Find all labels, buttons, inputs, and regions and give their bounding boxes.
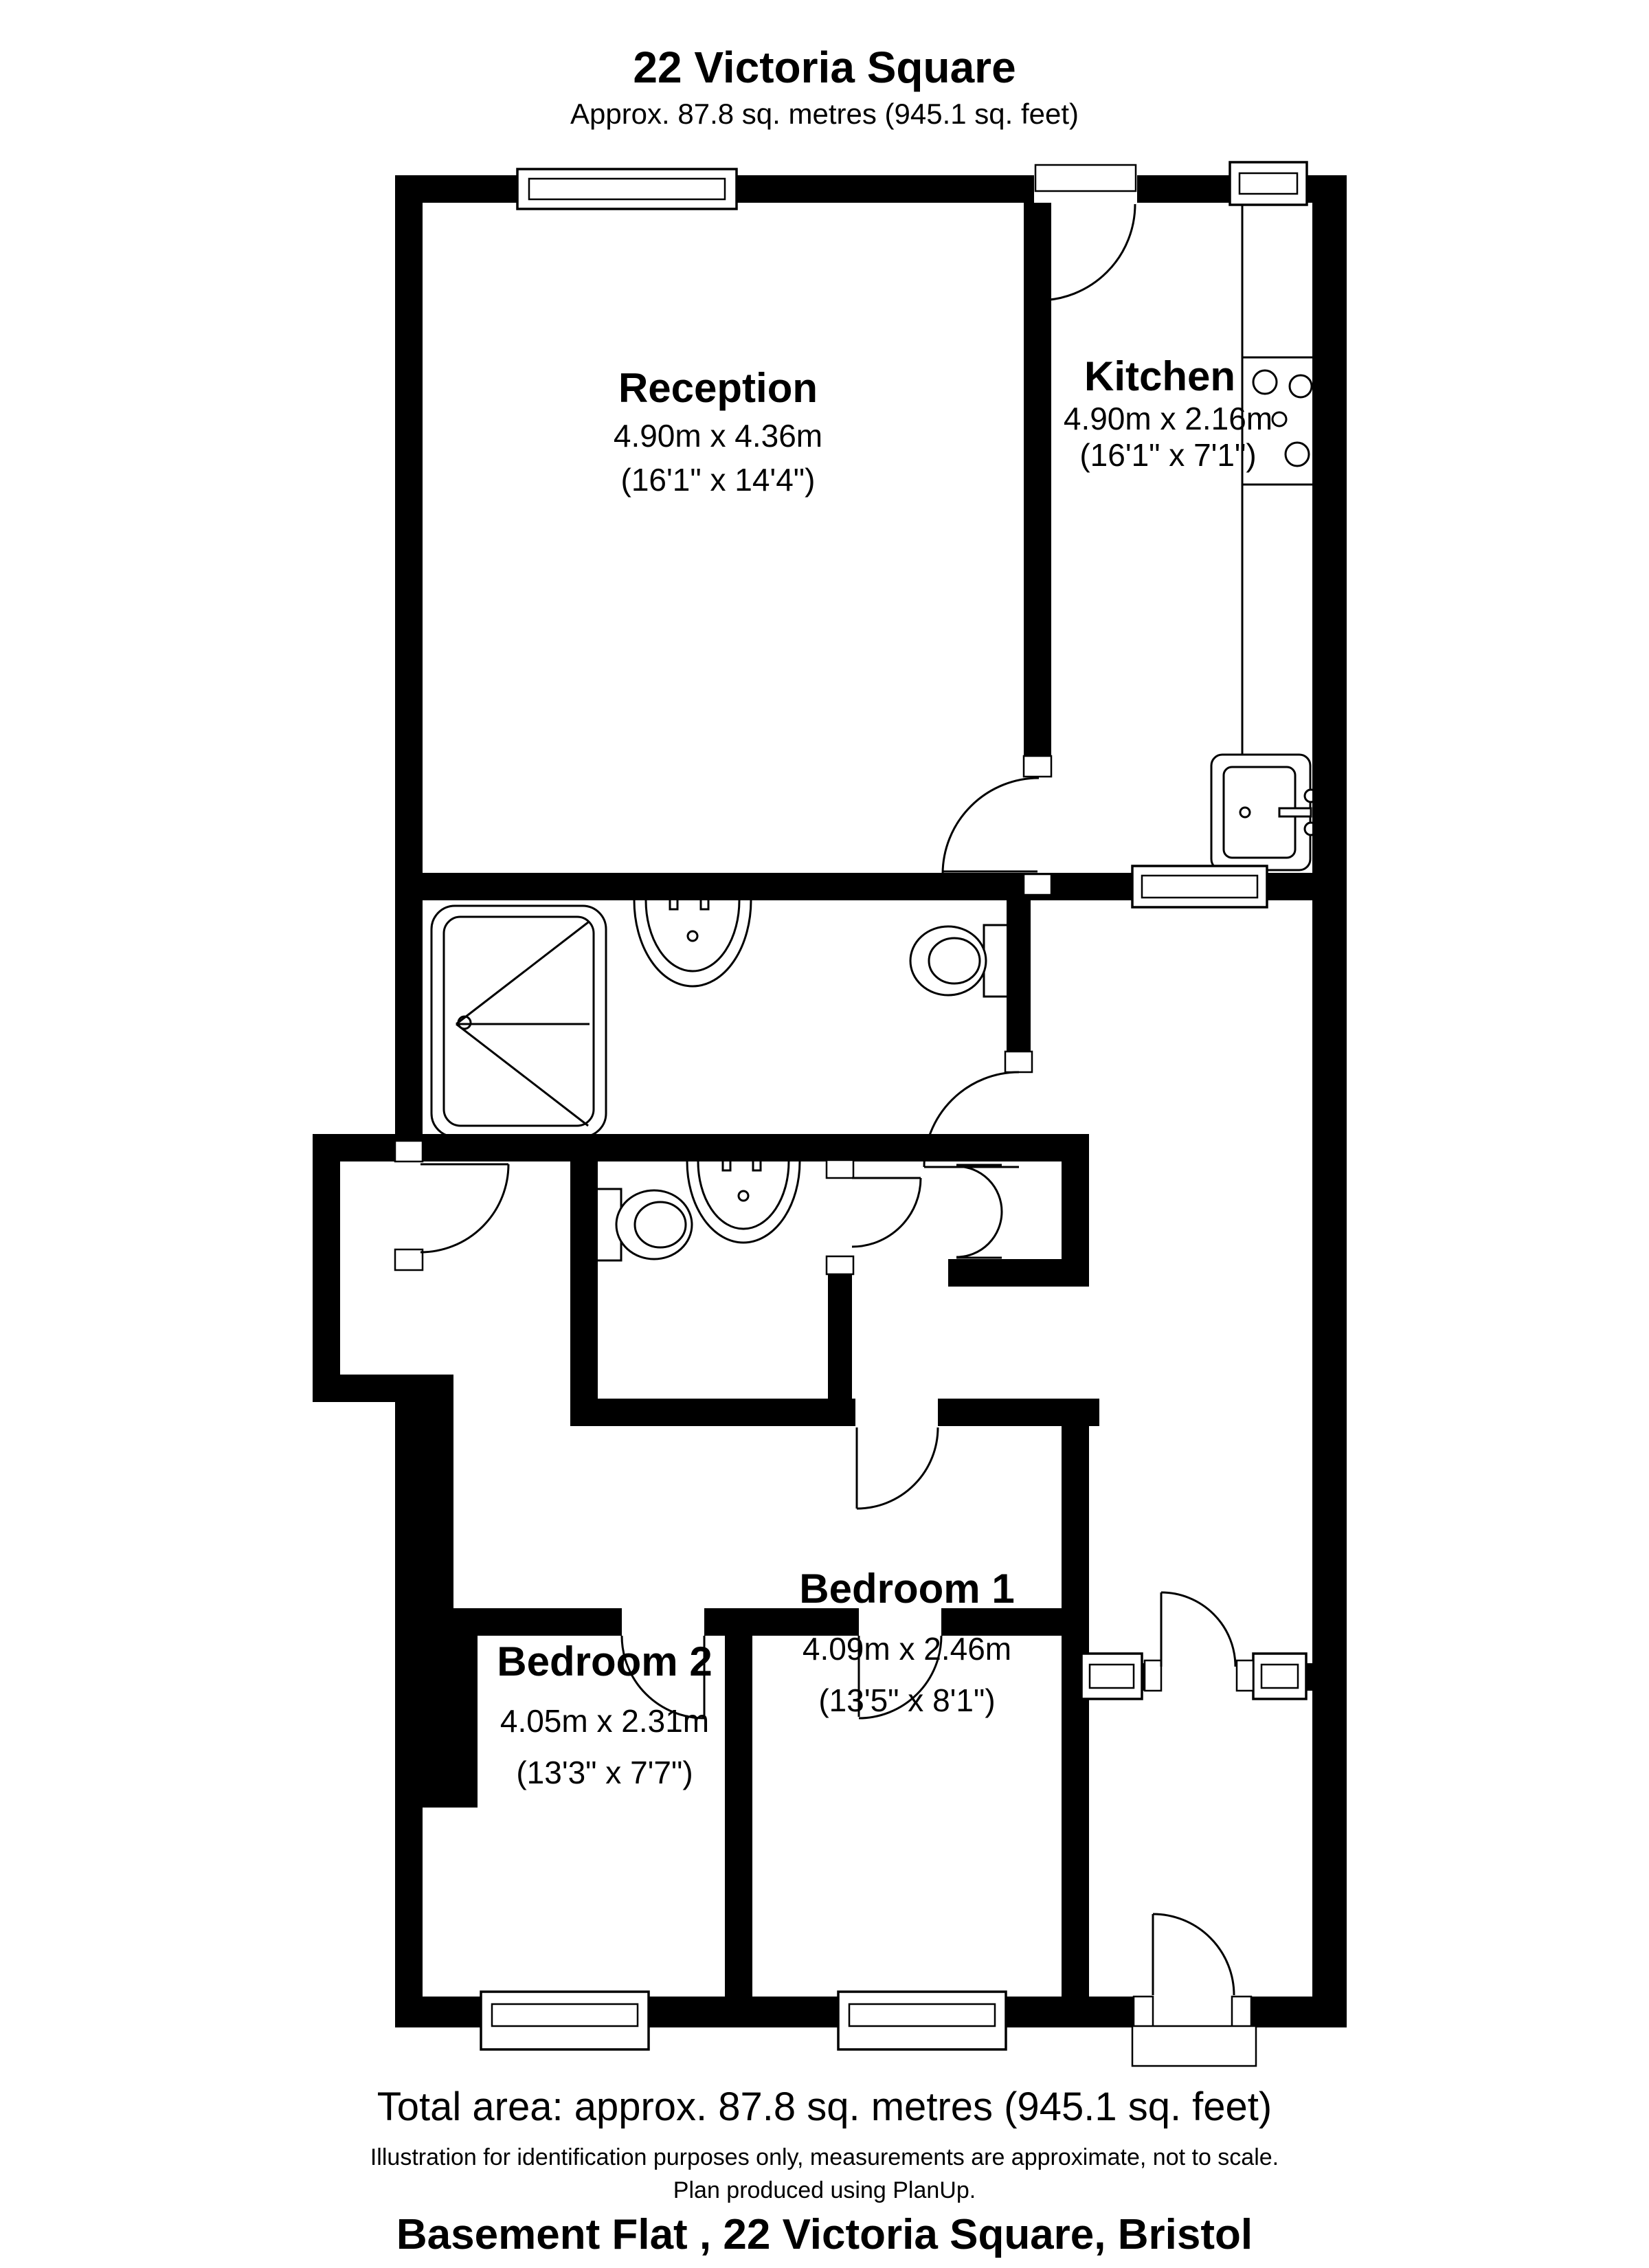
bedroom1-name: Bedroom 1 [799, 1566, 1014, 1612]
kitchen-bottom-window [1132, 866, 1267, 907]
bathtub-icon [431, 906, 606, 1137]
front-door [1132, 1914, 1256, 2066]
wc-toilet-icon [595, 1189, 692, 1260]
kitchen-sink-icon [1211, 755, 1317, 870]
reception-label: Reception 4.90m x 4.36m (16'1" x 14'4") [614, 365, 822, 498]
floorplan-page: 22 Victoria Square Approx. 87.8 sq. metr… [0, 0, 1649, 2268]
bedroom2-name: Bedroom 2 [497, 1638, 712, 1685]
corridor-hall-door [1145, 1592, 1253, 1691]
disclaimer-line1: Illustration for identification purposes… [370, 2144, 1279, 2170]
floor-plan: 22 Victoria Square Approx. 87.8 sq. metr… [0, 0, 1649, 2268]
inner-hall-door [857, 1427, 938, 1509]
disclaimer-line2: Plan produced using PlanUp. [673, 2177, 976, 2203]
hall-window-right [1253, 1654, 1306, 1699]
bathroom-toilet-icon [910, 925, 1010, 997]
bedroom2-dims-metric: 4.05m x 2.31m [500, 1703, 709, 1739]
bedroom2-window [481, 1992, 649, 2049]
reception-dims-metric: 4.90m x 4.36m [614, 418, 822, 454]
page-title: 22 Victoria Square [633, 43, 1016, 92]
kitchen-top-window [1230, 162, 1307, 205]
kitchen-label: Kitchen 4.90m x 2.16m (16'1" x 7'1") [1064, 353, 1272, 473]
reception-window [517, 169, 737, 209]
total-area-text: Total area: approx. 87.8 sq. metres (945… [377, 2084, 1272, 2129]
reception-name: Reception [618, 365, 818, 411]
closet-double-doors [956, 1165, 1002, 1258]
page-subtitle: Approx. 87.8 sq. metres (945.1 sq. feet) [570, 98, 1079, 130]
address-text: Basement Flat , 22 Victoria Square, Bris… [396, 2211, 1253, 2258]
bedroom1-label: Bedroom 1 4.09m x 2.46m (13'5" x 8'1") [799, 1566, 1014, 1718]
wc-door [827, 1160, 921, 1274]
bedroom2-dims-imperial: (13'3" x 7'7") [516, 1755, 693, 1790]
bedroom1-window [838, 1992, 1006, 2049]
reception-dims-imperial: (16'1" x 14'4") [621, 462, 816, 498]
hall-window-left [1081, 1654, 1142, 1699]
bedroom1-dims-imperial: (13'5" x 8'1") [818, 1682, 995, 1718]
kitchen-dims-imperial: (16'1" x 7'1") [1079, 437, 1256, 473]
kitchen-dims-metric: 4.90m x 2.16m [1064, 401, 1272, 436]
kitchen-name: Kitchen [1084, 353, 1235, 399]
bedroom1-dims-metric: 4.09m x 2.46m [803, 1631, 1011, 1667]
bedroom2-label: Bedroom 2 4.05m x 2.31m (13'3" x 7'7") [497, 1638, 712, 1790]
